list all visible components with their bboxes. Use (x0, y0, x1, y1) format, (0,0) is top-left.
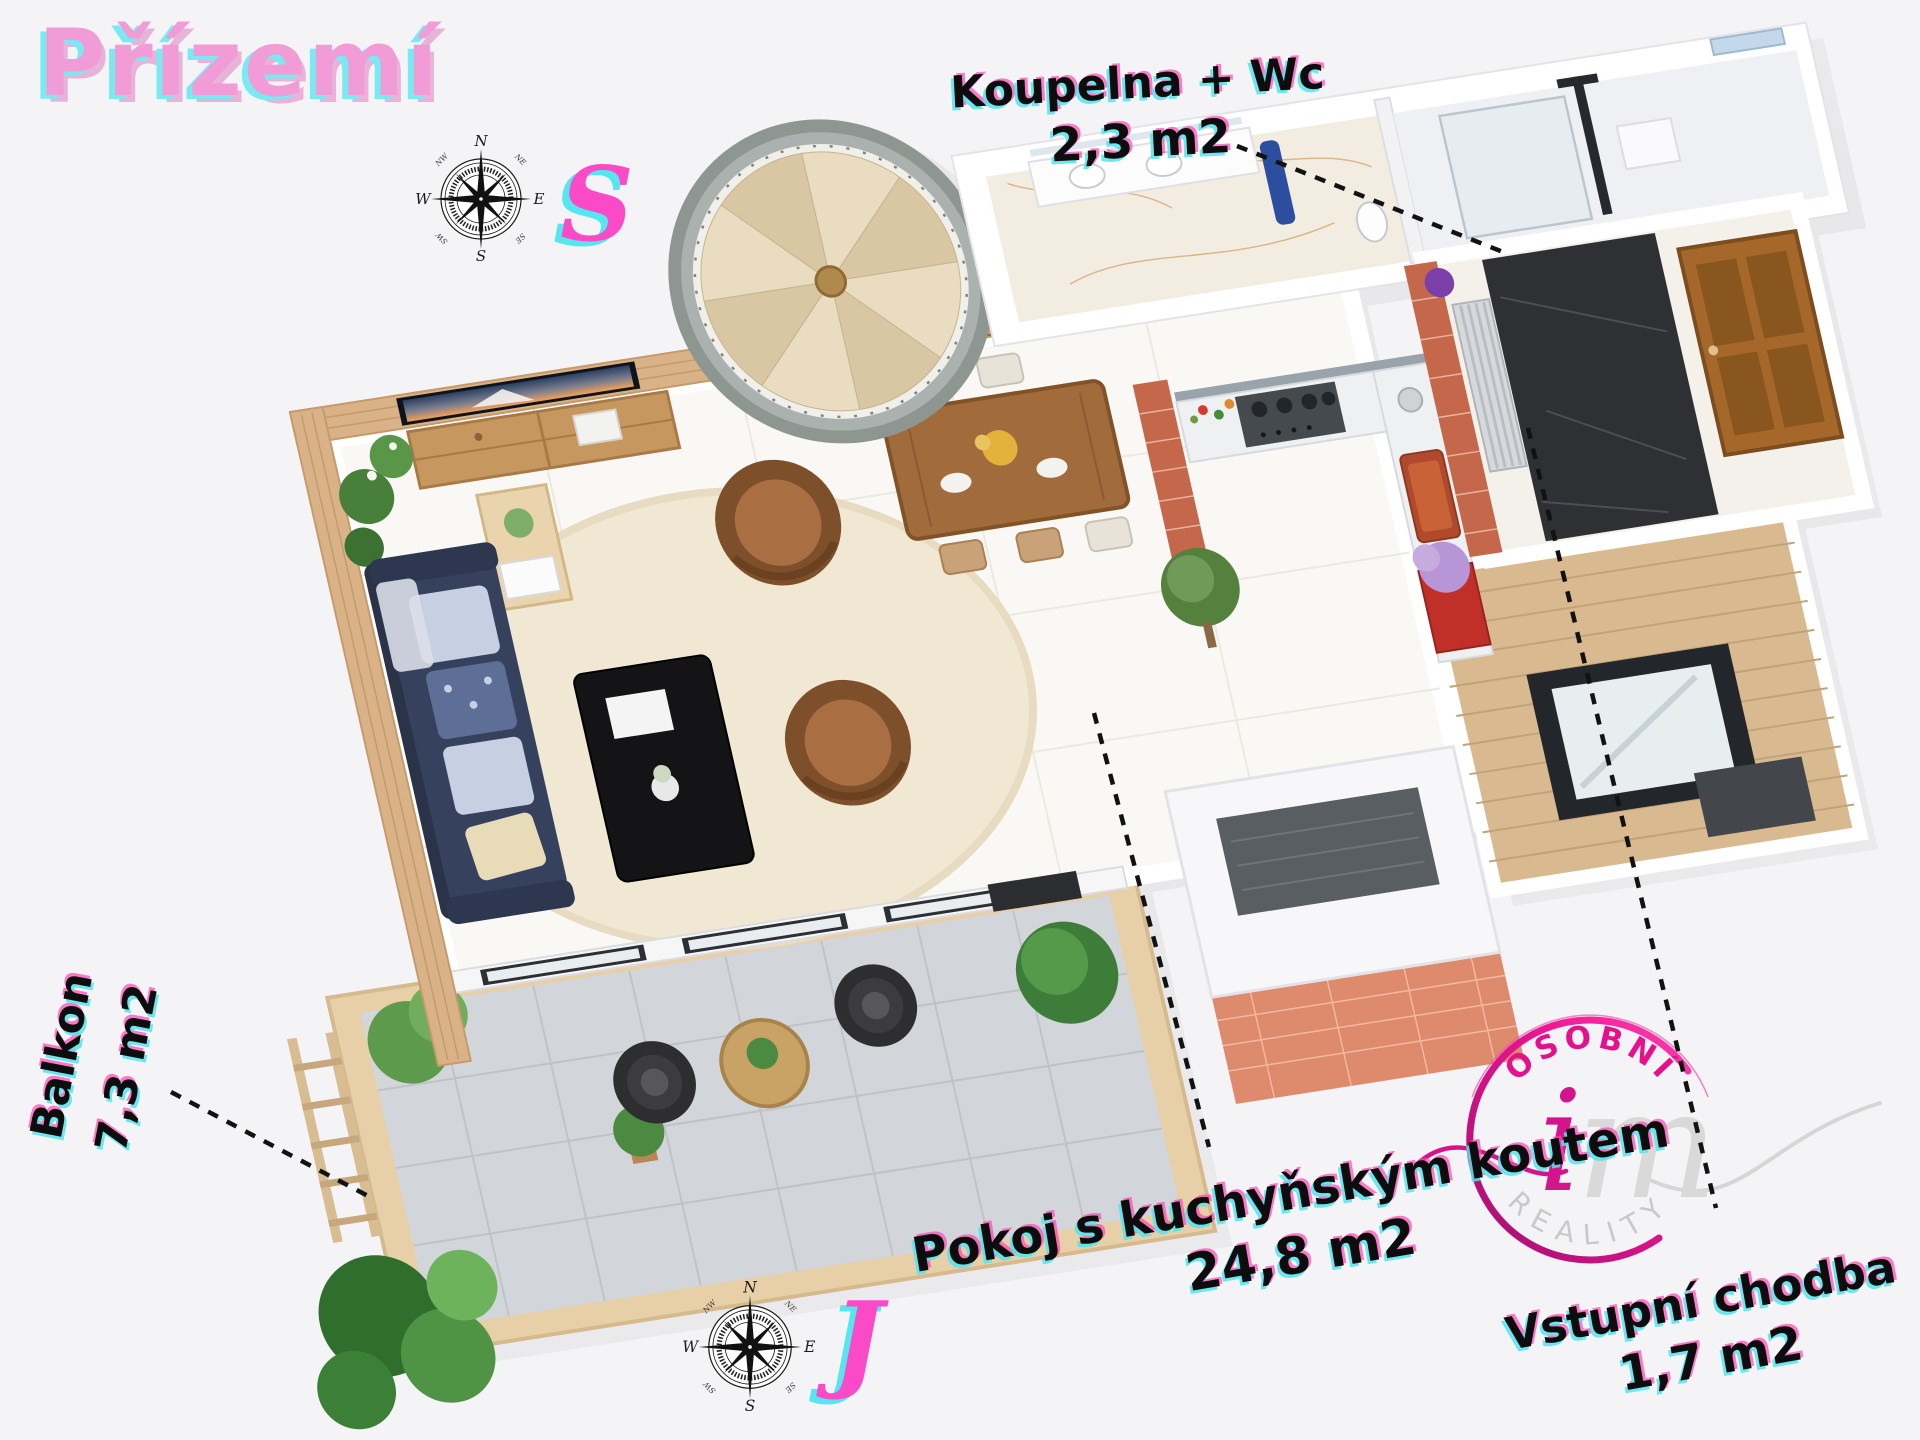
compass-rose-bottom: N E S W NW NE SW SE (682, 1279, 818, 1415)
compass-rose-top: N E S W NW NE SW SE (415, 133, 547, 265)
compass-se: SE (783, 1380, 797, 1394)
entry-deck (1423, 514, 1860, 891)
compass-e: E (803, 1338, 816, 1356)
north-direction-letter: S (560, 145, 634, 265)
compass-s: S (476, 247, 486, 265)
compass-n: N (742, 1279, 757, 1296)
compass-nw: NW (433, 151, 451, 169)
entrance-hall (1403, 201, 1865, 563)
compass-sw: SW (433, 230, 449, 246)
compass-se: SE (513, 231, 527, 245)
compass-ne: NE (512, 151, 528, 167)
compass-s: S (745, 1397, 756, 1415)
compass-ne: NE (782, 1298, 798, 1314)
compass-n: N (473, 133, 488, 150)
page-title: Přízemí (38, 10, 440, 117)
compass-nw: NW (700, 1297, 718, 1315)
compass-sw: SW (701, 1379, 717, 1395)
compass-w: W (415, 190, 432, 208)
compass-e: E (533, 190, 545, 208)
floor-plan-page: OSOBNÍ REALITY i m Přízemí Koupelna + Wc… (0, 0, 1920, 1440)
compass-w: W (682, 1338, 699, 1356)
large-plant (289, 1237, 525, 1435)
label-bathroom: Koupelna + Wc 2,3 m2 (949, 46, 1329, 182)
south-direction-letter: J (833, 1278, 883, 1403)
